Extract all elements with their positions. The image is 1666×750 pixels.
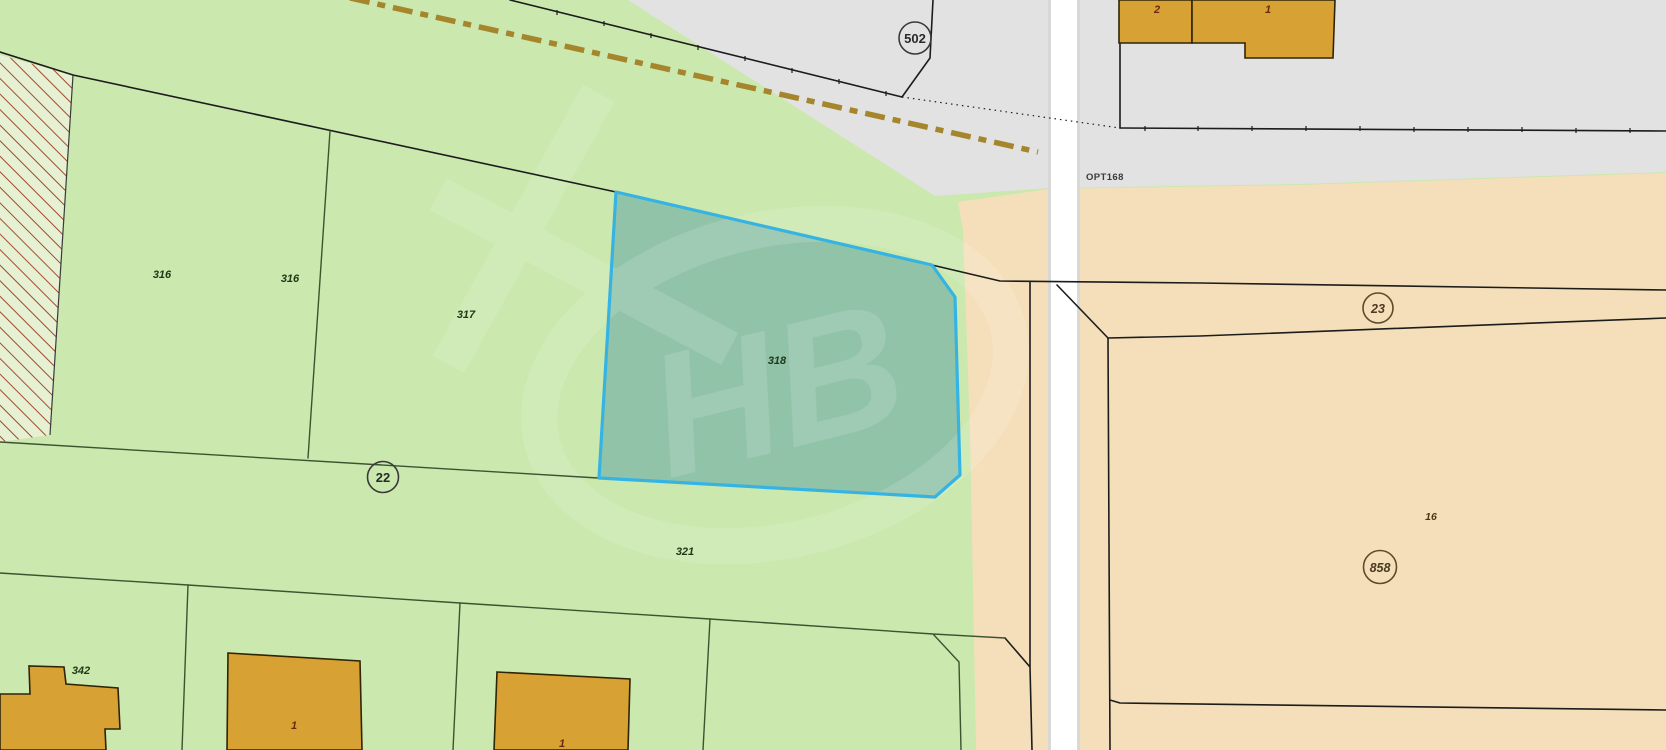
- cadastral-map-view: HB: [0, 0, 1666, 750]
- marker-label-502: 502: [904, 31, 926, 46]
- road-surface: [1048, 0, 1080, 750]
- parcel-label-316-a: 316: [153, 269, 172, 281]
- road-vertical: [1048, 0, 1080, 750]
- marker-label-22: 22: [376, 470, 390, 485]
- road-edge-right: [1077, 0, 1080, 750]
- parcel-label-317: 317: [457, 309, 476, 321]
- building-label-2-top: 2: [1153, 4, 1160, 16]
- marker-label-858: 858: [1370, 561, 1391, 575]
- road-edge-left: [1048, 0, 1051, 750]
- building-1-left: [227, 653, 362, 750]
- building-label-1-mid: 1: [559, 738, 565, 750]
- map-canvas[interactable]: HB: [0, 0, 1666, 750]
- parcel-label-321: 321: [676, 546, 694, 558]
- parcel-label-342: 342: [72, 665, 90, 677]
- building-label-1-left: 1: [291, 720, 297, 732]
- parcel-label-16: 16: [1425, 511, 1437, 523]
- point-annotation-pt168: OPT168: [1086, 172, 1124, 183]
- parcel-label-316-b: 316: [281, 273, 300, 285]
- parcel-label-318: 318: [768, 355, 787, 367]
- marker-label-23: 23: [1370, 302, 1385, 316]
- building-label-1-top: 1: [1265, 4, 1271, 16]
